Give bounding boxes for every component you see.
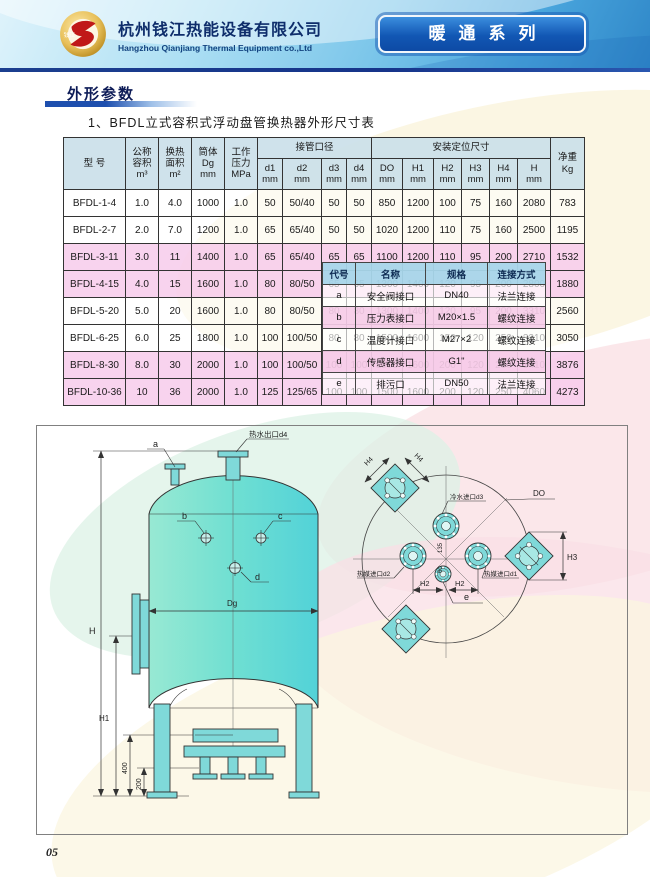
value-cell: 2560: [551, 298, 585, 325]
fitting-table-head: 代号名称规格连接方式: [323, 263, 546, 285]
spec-table-head: 型 号公称容积m³换热面积m²筒体Dgmm工作压力MPa接管口径安装定位尺寸净重…: [64, 138, 585, 190]
value-cell: 2.0: [126, 217, 159, 244]
fitting-cell: 传感器接口: [356, 351, 426, 373]
fitting-column-header: 规格: [426, 263, 488, 285]
fitting-cell: G1": [426, 351, 488, 373]
value-cell: 1.0: [225, 352, 258, 379]
vessel-shell: [149, 476, 318, 708]
fitting-cell: DN40: [426, 285, 488, 307]
fitting-column-header: 连接方式: [488, 263, 546, 285]
value-cell: 80/50: [283, 271, 322, 298]
fitting-cell: M20×1.5: [426, 307, 488, 329]
value-cell: 25: [159, 325, 192, 352]
dim-H2-right-label: H2: [455, 579, 465, 588]
value-cell: 80/50: [283, 298, 322, 325]
value-cell: 4.0: [159, 190, 192, 217]
bottom-connections: [184, 729, 285, 779]
value-cell: 1600: [192, 271, 225, 298]
value-cell: 7.0: [159, 217, 192, 244]
company-name-en: Hangzhou Qianjiang Thermal Equipment co.…: [118, 43, 322, 53]
value-cell: 4273: [551, 379, 585, 406]
drawing-box: H H1 400 200: [36, 425, 628, 835]
fitting-row: e排污口DN50法兰连接: [323, 373, 546, 395]
value-cell: 4.0: [126, 271, 159, 298]
code-cell: e: [323, 373, 356, 395]
dim-H2-left-label: H2: [420, 579, 430, 588]
value-cell: 75: [462, 190, 490, 217]
value-cell: 1.0: [225, 271, 258, 298]
value-cell: 1.0: [225, 244, 258, 271]
value-cell: 1.0: [225, 217, 258, 244]
sub-column-header: H2mm: [434, 159, 462, 190]
value-cell: 6.0: [126, 325, 159, 352]
table-caption: 1、BFDL立式容积式浮动盘管换热器外形尺寸表: [88, 112, 375, 131]
value-cell: 65: [258, 244, 283, 271]
dim-H-label: H: [89, 626, 96, 636]
fitting-cell: 螺纹连接: [488, 329, 546, 351]
fitting-cell: 螺纹连接: [488, 351, 546, 373]
model-cell: BFDL-4-15: [64, 271, 126, 298]
sub-column-header: Hmm: [518, 159, 551, 190]
dim-H3-label: H3: [567, 553, 578, 562]
dim-60-label: 60: [438, 566, 444, 573]
page-number: 05: [46, 845, 58, 860]
header-divider: [0, 68, 650, 72]
vessel-leg-left: [154, 704, 170, 792]
logo-text: 钱江: [64, 31, 76, 39]
leg-foot-left: [147, 792, 177, 798]
code-cell: b: [323, 307, 356, 329]
sub-column-header: d4mm: [347, 159, 372, 190]
value-cell: 65: [258, 217, 283, 244]
fitting-row: c温度计接口M27×2螺纹连接: [323, 329, 546, 351]
value-cell: 100/50: [283, 325, 322, 352]
fitting-row: b压力表接口M20×1.5螺纹连接: [323, 307, 546, 329]
value-cell: 110: [434, 217, 462, 244]
value-cell: 3876: [551, 352, 585, 379]
cold-water-inlet-label: 冷水进口d3: [450, 492, 484, 501]
value-cell: 1.0: [225, 298, 258, 325]
heat-medium-inlet-right-flange: [465, 543, 491, 569]
safety-valve-fitting: [165, 464, 185, 485]
fitting-header-row: 代号名称规格连接方式: [323, 263, 546, 285]
fitting-cell: DN50: [426, 373, 488, 395]
value-cell: 36: [159, 379, 192, 406]
value-cell: 15: [159, 271, 192, 298]
point-d-label: d: [255, 572, 260, 582]
sub-column-header: d3mm: [322, 159, 347, 190]
fitting-table-body: a安全阀接口DN40法兰连接b压力表接口M20×1.5螺纹连接c温度计接口M27…: [323, 285, 546, 395]
code-cell: d: [323, 351, 356, 373]
fitting-row: d传感器接口G1"螺纹连接: [323, 351, 546, 373]
value-cell: 100: [434, 190, 462, 217]
spec-row: BFDL-1-41.04.010001.05050/40505085012001…: [64, 190, 585, 217]
company-logo: 钱江 杭州钱江热能设备有限公司 Hangzhou Qianjiang Therm…: [58, 9, 322, 59]
value-cell: 80: [258, 298, 283, 325]
value-cell: 2080: [518, 190, 551, 217]
value-cell: 1800: [192, 325, 225, 352]
model-cell: BFDL-8-30: [64, 352, 126, 379]
value-cell: 1600: [192, 298, 225, 325]
fitting-cell: M27×2: [426, 329, 488, 351]
hot-water-outlet-label: 热水出口d4: [249, 429, 287, 439]
value-cell: 20: [159, 298, 192, 325]
dim-H1-label: H1: [99, 714, 110, 723]
fitting-cell: 安全阀接口: [356, 285, 426, 307]
value-cell: 1880: [551, 271, 585, 298]
value-cell: 1200: [403, 217, 434, 244]
value-cell: 50: [322, 190, 347, 217]
code-cell: c: [323, 329, 356, 351]
value-cell: 2000: [192, 352, 225, 379]
value-cell: 1.0: [225, 379, 258, 406]
dim-135-label: 135: [438, 542, 444, 553]
fitting-cell: 螺纹连接: [488, 307, 546, 329]
model-cell: BFDL-6-25: [64, 325, 126, 352]
model-cell: BFDL-5-20: [64, 298, 126, 325]
value-cell: 50: [347, 190, 372, 217]
value-cell: 80: [258, 271, 283, 298]
value-cell: 75: [462, 217, 490, 244]
value-cell: 2000: [192, 379, 225, 406]
company-name-cn: 杭州钱江热能设备有限公司: [118, 16, 322, 40]
point-c-label: c: [278, 511, 283, 521]
value-cell: 1195: [551, 217, 585, 244]
value-cell: 1400: [192, 244, 225, 271]
sub-column-header: d2mm: [283, 159, 322, 190]
point-a-label: a: [153, 439, 158, 449]
value-cell: 50: [347, 217, 372, 244]
value-cell: 1200: [403, 190, 434, 217]
page: 钱江 杭州钱江热能设备有限公司 Hangzhou Qianjiang Therm…: [0, 0, 650, 877]
value-cell: 1.0: [126, 190, 159, 217]
series-badge: 暖通系列: [378, 15, 586, 53]
value-cell: 783: [551, 190, 585, 217]
fitting-column-header: 代号: [323, 263, 356, 285]
value-cell: 1000: [192, 190, 225, 217]
dim-DO-label: DO: [533, 489, 545, 498]
sub-column-header: H4mm: [490, 159, 518, 190]
value-cell: 125: [258, 379, 283, 406]
dim-400-label: 400: [122, 762, 129, 774]
value-cell: 11: [159, 244, 192, 271]
model-cell: BFDL-3-11: [64, 244, 126, 271]
value-cell: 1020: [372, 217, 403, 244]
sub-column-header: DOmm: [372, 159, 403, 190]
column-header: 筒体Dgmm: [192, 138, 225, 190]
value-cell: 30: [159, 352, 192, 379]
value-cell: 3.0: [126, 244, 159, 271]
dim-H4-label-top: H4: [413, 452, 424, 463]
value-cell: 10: [126, 379, 159, 406]
column-header: 接管口径: [258, 138, 372, 159]
value-cell: 1.0: [225, 190, 258, 217]
cold-water-inlet-flange: [433, 513, 459, 539]
value-cell: 100: [258, 325, 283, 352]
value-cell: 5.0: [126, 298, 159, 325]
value-cell: 2500: [518, 217, 551, 244]
vessel-leg-right: [296, 704, 312, 792]
model-cell: BFDL-10-36: [64, 379, 126, 406]
model-cell: BFDL-1-4: [64, 190, 126, 217]
spec-header-row: 型 号公称容积m³换热面积m²筒体Dgmm工作压力MPa接管口径安装定位尺寸净重…: [64, 138, 585, 159]
column-header: 公称容积m³: [126, 138, 159, 190]
technical-drawing: H H1 400 200: [37, 426, 627, 832]
point-b-label: b: [182, 511, 187, 521]
section-title: 外形参数: [67, 83, 135, 104]
dim-H4-label-left: H4: [363, 456, 374, 467]
fitting-cell: 温度计接口: [356, 329, 426, 351]
value-cell: 50/40: [283, 190, 322, 217]
value-cell: 1200: [192, 217, 225, 244]
fitting-cell: 法兰连接: [488, 285, 546, 307]
value-cell: 3050: [551, 325, 585, 352]
front-view: H H1 400 200: [89, 429, 319, 798]
logo-icon: 钱江: [58, 9, 108, 59]
fitting-cell: 压力表接口: [356, 307, 426, 329]
value-cell: 50: [258, 190, 283, 217]
code-cell: a: [323, 285, 356, 307]
top-view: DO H4 H4: [353, 452, 578, 658]
sub-column-header: H3mm: [462, 159, 490, 190]
heat-medium-inlet-left-flange: [400, 543, 426, 569]
value-cell: 100/50: [283, 352, 322, 379]
value-cell: 100: [258, 352, 283, 379]
value-cell: 125/65: [283, 379, 322, 406]
column-header: 工作压力MPa: [225, 138, 258, 190]
fitting-column-header: 名称: [356, 263, 426, 285]
sub-column-header: H1mm: [403, 159, 434, 190]
page-header: 钱江 杭州钱江热能设备有限公司 Hangzhou Qianjiang Therm…: [0, 0, 650, 68]
value-cell: 50: [322, 217, 347, 244]
value-cell: 65/40: [283, 217, 322, 244]
leg-foot-right: [289, 792, 319, 798]
fitting-row: a安全阀接口DN40法兰连接: [323, 285, 546, 307]
value-cell: 8.0: [126, 352, 159, 379]
square-flange-nw: [371, 464, 419, 512]
column-header: 净重Kg: [551, 138, 585, 190]
fitting-cell: 排污口: [356, 373, 426, 395]
value-cell: 1.0: [225, 325, 258, 352]
model-cell: BFDL-2-7: [64, 217, 126, 244]
column-header: 型 号: [64, 138, 126, 190]
dim-Dg-label: Dg: [227, 599, 237, 608]
fitting-table: 代号名称规格连接方式 a安全阀接口DN40法兰连接b压力表接口M20×1.5螺纹…: [322, 262, 546, 395]
value-cell: 65/40: [283, 244, 322, 271]
side-flange: [132, 594, 149, 674]
drain-label: e: [464, 592, 469, 602]
fitting-cell: 法兰连接: [488, 373, 546, 395]
value-cell: 160: [490, 190, 518, 217]
value-cell: 850: [372, 190, 403, 217]
value-cell: 160: [490, 217, 518, 244]
spec-row: BFDL-2-72.07.012001.06565/40505010201200…: [64, 217, 585, 244]
column-header: 安装定位尺寸: [372, 138, 551, 159]
value-cell: 1532: [551, 244, 585, 271]
sub-column-header: d1mm: [258, 159, 283, 190]
heat-medium-right-label: 热媒进口d1: [484, 569, 518, 578]
column-header: 换热面积m²: [159, 138, 192, 190]
dim-200-label: 200: [136, 778, 143, 790]
square-flange-sw: [382, 605, 430, 653]
heat-medium-left-label: 热媒进口d2: [357, 569, 391, 578]
